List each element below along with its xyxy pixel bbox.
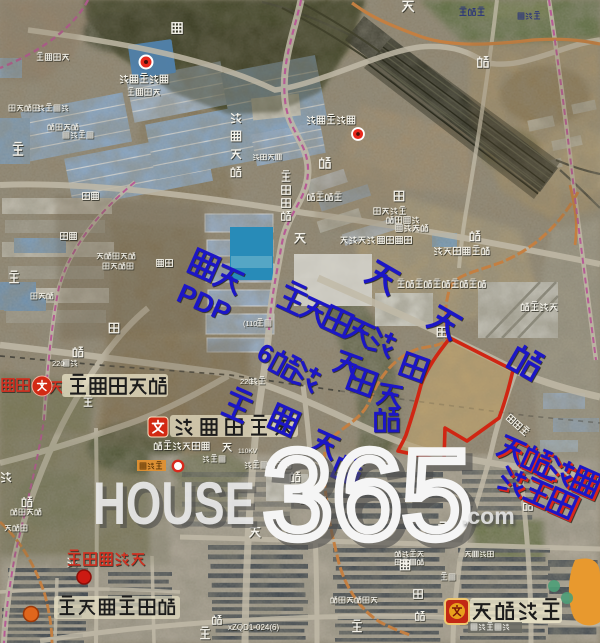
svg-text:(110: (110 [243,319,257,328]
svg-text:.com: .com [461,503,515,529]
svg-text:110KV: 110KV [238,448,258,455]
svg-text:xZQD1-024(6): xZQD1-024(6) [228,623,279,632]
svg-text:365: 365 [263,426,472,565]
svg-text:220: 220 [240,377,253,386]
svg-text:HOUSE: HOUSE [93,470,255,537]
svg-text:220: 220 [52,359,65,368]
